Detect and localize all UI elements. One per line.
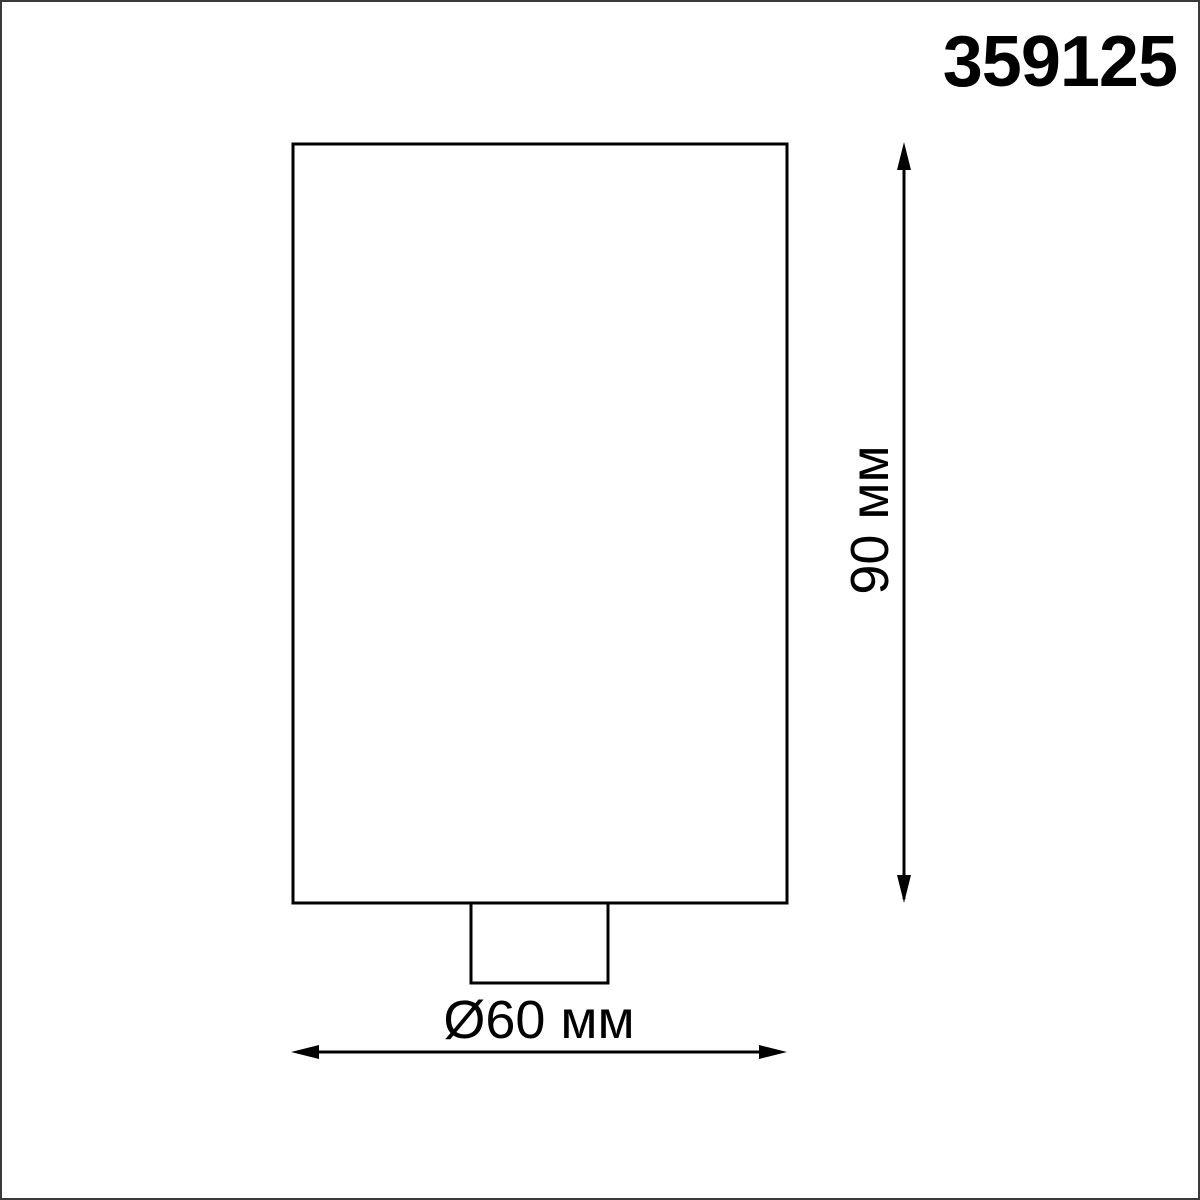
technical-drawing-page: 90 мм Ø60 мм 359125 <box>0 0 1200 1200</box>
height-dimension-label: 90 мм <box>840 445 900 594</box>
right-arrowhead-icon <box>759 1045 787 1059</box>
diameter-dimension-label: Ø60 мм <box>443 990 634 1050</box>
product-code: 359125 <box>943 22 1177 102</box>
left-arrowhead-icon <box>291 1045 319 1059</box>
down-arrowhead-icon <box>897 875 911 903</box>
fixture-body-outline <box>293 144 787 903</box>
fixture-mount-outline <box>471 903 608 983</box>
dimension-drawing: 90 мм Ø60 мм 359125 <box>2 2 1198 1198</box>
up-arrowhead-icon <box>897 142 911 170</box>
